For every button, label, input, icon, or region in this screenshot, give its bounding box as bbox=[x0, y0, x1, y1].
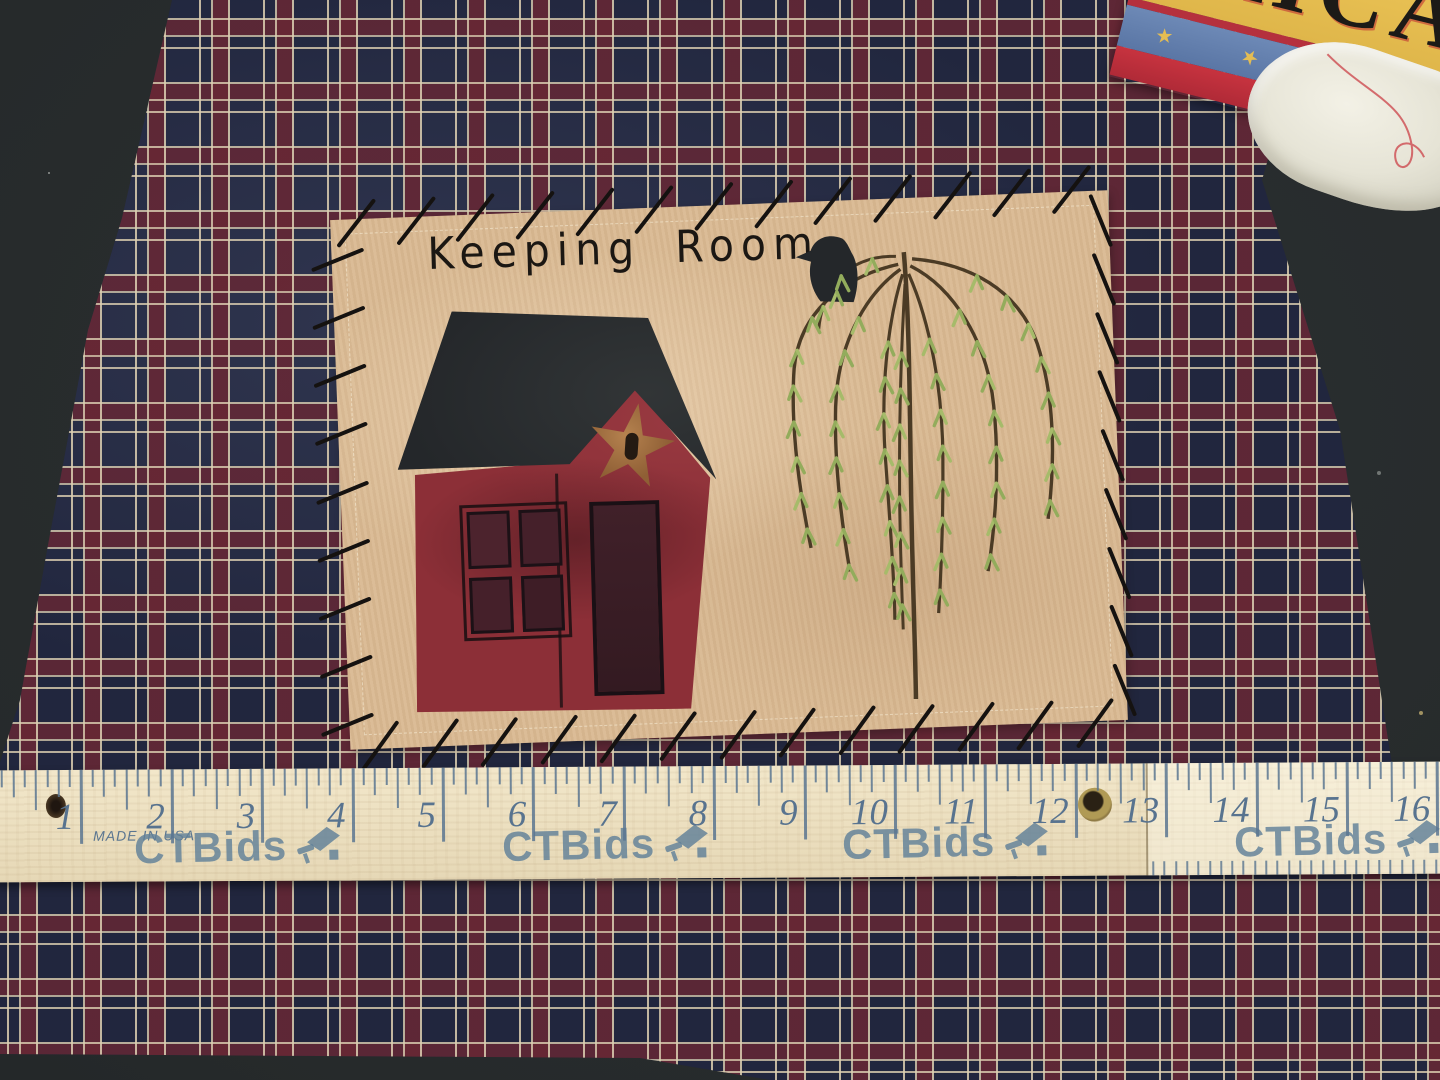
ruler-tick bbox=[1187, 763, 1189, 790]
felt-sampler: Keeping Room bbox=[330, 190, 1128, 749]
ruler-tick bbox=[464, 768, 466, 795]
ruler-tick bbox=[826, 765, 828, 792]
window-pane bbox=[520, 574, 565, 632]
ruler-tick bbox=[1197, 861, 1199, 875]
ruler-tick bbox=[182, 769, 184, 786]
ruler-tick bbox=[227, 769, 229, 786]
ruler-tick bbox=[1165, 763, 1168, 837]
ruler-number: 1 bbox=[28, 796, 74, 839]
ruler-number: 8 bbox=[661, 792, 707, 835]
ruler-tick bbox=[340, 768, 342, 785]
ruler-tick bbox=[1367, 860, 1369, 874]
ruler-tick bbox=[1221, 763, 1223, 780]
ruler-tick bbox=[1097, 764, 1099, 791]
ruler-tick bbox=[1254, 861, 1256, 875]
ruler-tick bbox=[317, 768, 319, 785]
ruler-tick bbox=[374, 768, 376, 795]
ruler-tick bbox=[803, 765, 806, 839]
ruler-tick bbox=[1074, 764, 1077, 838]
ruler-tick bbox=[984, 764, 987, 838]
ruler-tick bbox=[1041, 764, 1043, 781]
ruler-tick bbox=[1231, 861, 1233, 875]
ruler-tick bbox=[973, 764, 975, 781]
ruler-number: 7 bbox=[571, 793, 617, 836]
ruler-tick bbox=[1186, 861, 1188, 875]
ruler-number: 15 bbox=[1294, 788, 1340, 831]
ruler-tick bbox=[950, 765, 952, 782]
ruler-tick bbox=[1436, 762, 1439, 836]
ruler-tick bbox=[204, 769, 206, 786]
ruler-number: 12 bbox=[1023, 790, 1069, 833]
ruler-tick bbox=[170, 769, 173, 843]
ruler-tick bbox=[114, 770, 116, 787]
ruler-tick bbox=[46, 770, 48, 787]
ruler-tick bbox=[193, 769, 195, 796]
ruler-tick bbox=[905, 765, 907, 782]
window-pane bbox=[469, 576, 514, 634]
ruler-number: 5 bbox=[390, 794, 436, 837]
photo-scene: ERICA ★ ★ ★ ★ Keeping Room bbox=[0, 0, 1440, 1080]
ruler-tick bbox=[1233, 763, 1235, 790]
ruler-tick bbox=[1435, 860, 1437, 874]
ruler-tick bbox=[476, 767, 478, 784]
ruler-tick bbox=[837, 765, 839, 782]
ruler-tick bbox=[69, 770, 71, 787]
ruler-tick bbox=[1402, 762, 1404, 779]
wooden-ruler: MADE IN USA CTBids CTBids CTBids bbox=[0, 762, 1440, 883]
ruler-tick bbox=[159, 769, 161, 786]
house-door bbox=[589, 500, 664, 696]
table-dust-specks bbox=[48, 172, 50, 174]
ruler-tick bbox=[1423, 860, 1425, 874]
ruler-tick bbox=[622, 767, 625, 841]
willow-leaf bbox=[845, 351, 853, 366]
ruler-tick bbox=[509, 767, 511, 794]
ruler-tick bbox=[1086, 764, 1088, 781]
ruler-tick bbox=[1244, 763, 1246, 780]
ruler-number: 3 bbox=[209, 795, 255, 838]
ruler-number: 13 bbox=[1113, 789, 1159, 832]
willow-leaf bbox=[1001, 296, 1006, 309]
ruler-tick bbox=[1199, 763, 1201, 780]
ruler-tick bbox=[408, 768, 410, 785]
ruler-tick bbox=[351, 768, 354, 842]
ruler-tick bbox=[1007, 764, 1009, 791]
ruler-tick bbox=[735, 766, 737, 793]
ruler-tick bbox=[442, 768, 445, 842]
ruler-tick bbox=[600, 767, 602, 794]
ruler-tick bbox=[656, 766, 658, 783]
ruler-tick bbox=[995, 764, 997, 781]
willow-leaf bbox=[1050, 501, 1058, 516]
ruler-tick bbox=[1154, 763, 1156, 780]
ruler-tick bbox=[781, 766, 783, 793]
willow-leaf bbox=[844, 565, 849, 578]
ruler-tick bbox=[916, 765, 918, 792]
willow-leaf bbox=[823, 307, 828, 320]
ruler-tick bbox=[928, 765, 930, 782]
ruler-tick bbox=[272, 769, 274, 786]
ruler-number: 14 bbox=[1203, 789, 1249, 832]
ruler-tick bbox=[295, 769, 297, 786]
ruler-tick bbox=[1018, 764, 1020, 781]
willow-leaf bbox=[859, 318, 864, 331]
ruler-tick bbox=[882, 765, 884, 782]
ruler-tick bbox=[430, 768, 432, 785]
ruler-tick bbox=[1243, 861, 1245, 875]
ruler-tick bbox=[1063, 764, 1065, 781]
ruler-tick bbox=[261, 769, 264, 843]
ruler-tick bbox=[815, 765, 817, 782]
ruler-tick bbox=[645, 766, 647, 793]
ruler-tick bbox=[1255, 763, 1258, 837]
ruler-tick bbox=[103, 770, 105, 797]
ruler-tick bbox=[1052, 764, 1054, 791]
ruler-tick bbox=[363, 768, 365, 785]
ruler-tick bbox=[894, 765, 897, 839]
ruler-tick bbox=[419, 768, 421, 795]
ruler-tick bbox=[871, 765, 873, 792]
willow-leaf bbox=[972, 342, 977, 355]
ruler-tick bbox=[860, 765, 862, 782]
ruler-tick bbox=[498, 767, 500, 784]
ruler-tick bbox=[1209, 861, 1211, 875]
ruler-tick bbox=[385, 768, 387, 785]
ruler-tick bbox=[329, 768, 331, 795]
ruler-tick bbox=[453, 768, 455, 785]
ruler-number: 16 bbox=[1384, 788, 1430, 831]
ruler-tick bbox=[1378, 860, 1380, 874]
ruler-tick bbox=[1346, 762, 1349, 836]
ruler-tick bbox=[702, 766, 704, 783]
ruler-tick bbox=[611, 767, 613, 784]
ruler-number: 2 bbox=[119, 795, 165, 838]
tree-branch bbox=[910, 263, 1001, 574]
ruler-tick bbox=[792, 766, 794, 783]
ruler-tick bbox=[1265, 861, 1267, 875]
ruler-tick bbox=[1310, 860, 1312, 874]
house-window bbox=[459, 501, 572, 641]
ruler-tick bbox=[1357, 762, 1359, 779]
window-pane bbox=[518, 509, 563, 567]
ruler-number: 10 bbox=[842, 791, 888, 834]
ruler-tick bbox=[1322, 860, 1324, 874]
ruler-tick bbox=[1277, 861, 1279, 875]
ruler-tick bbox=[1334, 762, 1336, 779]
ruler-tick bbox=[634, 767, 636, 784]
window-pane bbox=[466, 510, 511, 568]
ruler-tick bbox=[589, 767, 591, 784]
ruler-tick bbox=[24, 770, 26, 787]
ruler-tick bbox=[521, 767, 523, 784]
willow-leaf bbox=[797, 350, 802, 363]
ruler-tick bbox=[91, 770, 93, 787]
ruler-tick bbox=[769, 766, 771, 783]
ruler-number: 4 bbox=[299, 794, 345, 837]
ruler-tick bbox=[566, 767, 568, 784]
ruler-tick bbox=[1368, 762, 1370, 789]
ruler-tick bbox=[1380, 762, 1382, 779]
ruler-tick bbox=[1164, 861, 1166, 875]
ruler-number: 11 bbox=[932, 790, 978, 833]
ruler-tick bbox=[1323, 762, 1325, 789]
ruler-tick bbox=[1267, 763, 1269, 780]
ruler-tick bbox=[137, 770, 139, 787]
ruler-grommet bbox=[1078, 788, 1112, 822]
ruler-tick bbox=[1401, 860, 1403, 874]
banner-star-icon: ★ bbox=[1155, 23, 1174, 49]
willow-leaf bbox=[849, 565, 857, 580]
ruler-tick bbox=[57, 770, 59, 797]
ruler-tick bbox=[1412, 860, 1414, 874]
ruler-tick bbox=[1108, 764, 1110, 781]
ruler-tick bbox=[1413, 762, 1415, 789]
ruler-number: 6 bbox=[480, 793, 526, 836]
willow-leaf bbox=[1036, 358, 1041, 371]
ruler-tick bbox=[1131, 763, 1133, 780]
ruler-tick bbox=[1175, 861, 1177, 875]
crow-bird bbox=[795, 235, 858, 304]
ruler-tick bbox=[690, 766, 692, 793]
ruler-tick bbox=[1, 770, 3, 787]
ruler-tick bbox=[1142, 763, 1144, 790]
ruler-tick bbox=[12, 770, 14, 797]
ruler-tick bbox=[250, 769, 252, 786]
ruler-tick bbox=[747, 766, 749, 783]
ruler-tick bbox=[532, 767, 535, 841]
ruler-tick bbox=[238, 769, 240, 796]
ruler-tick bbox=[283, 769, 285, 796]
ruler-tick bbox=[1278, 763, 1280, 790]
ruler-tick bbox=[679, 766, 681, 783]
ruler-tick bbox=[1356, 860, 1358, 874]
ruler-tick bbox=[1289, 763, 1291, 780]
ruler-tick bbox=[1220, 861, 1222, 875]
ruler-tick bbox=[1344, 860, 1346, 874]
ruler-tick bbox=[1425, 762, 1427, 779]
ruler-tick bbox=[724, 766, 726, 783]
ruler-tick bbox=[1299, 860, 1301, 874]
ruler-tick bbox=[1390, 860, 1392, 874]
ruler-tick bbox=[80, 770, 83, 844]
ruler-tick bbox=[961, 765, 963, 792]
ruler-tick bbox=[1333, 860, 1335, 874]
ruler-tick bbox=[148, 769, 150, 796]
ruler-tick bbox=[1288, 861, 1290, 875]
ruler-tick bbox=[1176, 763, 1178, 780]
ruler-tick bbox=[555, 767, 557, 794]
ruler-tick bbox=[1312, 762, 1314, 779]
willow-leaf bbox=[990, 555, 998, 570]
ruler-tick bbox=[1152, 861, 1154, 875]
ruler-number: 9 bbox=[751, 792, 797, 835]
ruler-tick bbox=[543, 767, 545, 784]
willow-tree bbox=[710, 206, 1130, 741]
star-button-hole bbox=[624, 432, 639, 460]
ruler-tick bbox=[713, 766, 716, 840]
